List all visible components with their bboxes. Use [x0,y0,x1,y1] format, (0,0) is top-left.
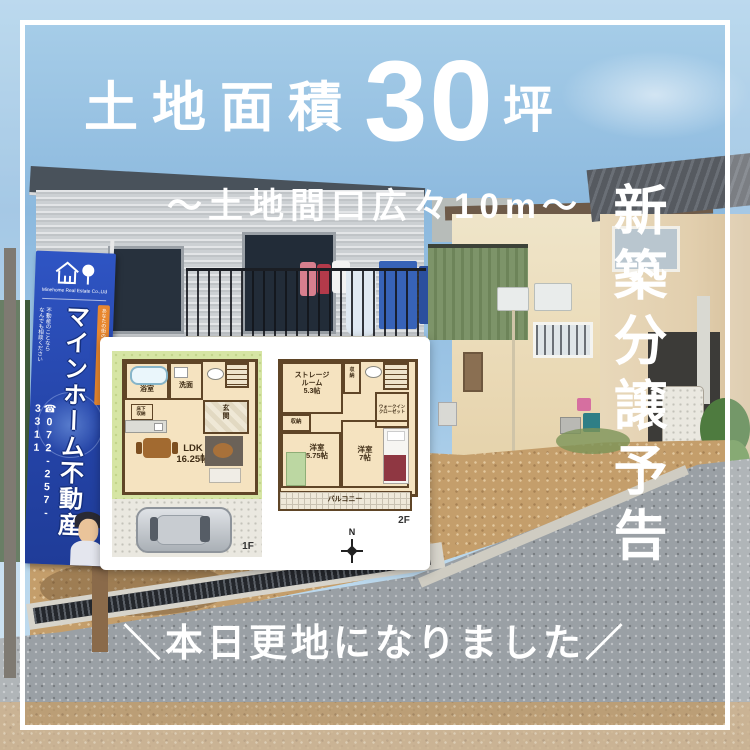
fp1-bath-label: 浴室 [127,386,167,394]
fp2-floor-label: 2F [394,515,414,526]
fp1-stairs [225,362,249,388]
fp2-closet-left-label: 収納 [283,419,309,425]
side-vertical-text: 新築分譲予告 [608,182,662,572]
bathtub [130,366,168,385]
compass-n-label: N [344,527,360,537]
fp2-closet-top: 収 納 [343,362,361,394]
fp2-bedroom2: 洋室 7帖 [341,420,409,488]
banner-company-en: Minehome Real Estate Co.,Ltd [34,288,114,296]
phone-icon: ☎ [44,403,56,416]
fp2-storage-label: ストレージ ルーム 5.3帖 [283,372,341,395]
fp2-closet-top-label: 収 納 [345,368,359,379]
fp2-bed-blanket [384,455,406,481]
white-bin [438,402,457,426]
bottom-banner-text: ＼本日更地になりました／ [0,612,750,667]
barred-window [533,322,593,358]
headline-number: 30 [364,52,495,152]
car-top-view [136,507,232,553]
fp1-underfloor: 床下 収納 [131,404,153,420]
fp1-underfloor-label: 床下 収納 [132,406,150,416]
banner-phone-number: ☎072-257-3311 [26,403,56,559]
bottom-gravel [0,702,750,750]
house-tree-logo-icon [51,257,100,289]
fp2-bedroom1: 洋室 5.75帖 [281,432,341,488]
ac-unit-1 [497,287,529,311]
fp1-entrance-label: 玄 関 [219,405,233,421]
fp1-bathroom: 浴室 [125,362,169,400]
headline: 土地面積 30 坪 [84,52,553,152]
fp1-toilet [207,368,224,380]
fp2-stairs [383,362,409,390]
banner-divider [42,298,106,301]
headline-unit: 坪 [503,70,553,152]
ac-unit-2 [534,283,572,311]
fp1-wash-label: 洗面 [171,382,201,390]
banner-tagline-left: 不動産のことなら なんでも相談ください [33,307,51,399]
headline-prefix: 土地面積 [84,63,356,152]
sink [174,367,188,378]
pink-bucket [577,398,591,411]
phone-digits: 072-257-3311 [30,403,55,521]
fp2-plan: ストレージ ルーム 5.3帖 収 納 ウォークイン クローゼット 収納 洋室 5… [278,359,418,497]
fp2-bed-pillow [387,431,405,441]
fp2-storage-room: ストレージ ルーム 5.3帖 [281,362,343,414]
mascot-face [78,518,99,543]
car-windshield [200,516,210,542]
kitchen-sink [154,423,163,431]
chair-left [136,442,142,454]
fp1-driveway: 1F [112,499,262,557]
balcony-railing [186,268,426,341]
left-building-window-1 [108,246,184,334]
fp2-balcony: バルコニー [278,491,412,511]
compass-diamond [346,545,357,556]
compass: N [336,527,368,567]
floorplan-card: 浴室 洗面 玄 関 床下 収納 LDK 16.25帖 [100,337,430,570]
fp2-toilet [365,366,382,378]
fp2-closet-left: 収納 [281,414,311,432]
car-rear-window [150,517,158,541]
kitchen-counter [125,420,167,433]
mascot-shirt [70,540,103,566]
rug-cushion [213,443,233,458]
fp2-bed-white [383,428,409,484]
fp1-plan: 浴室 洗面 玄 関 床下 収納 LDK 16.25帖 [122,359,258,495]
fp1-floor-label: 1F [238,541,258,552]
cloud [560,50,750,140]
fp2-wic-label: ウォークイン クローゼット [377,405,407,415]
fp2-balcony-label: バルコニー [280,496,410,504]
living-rug [205,436,243,466]
fp2-bed-green [286,452,306,486]
sofa [209,468,241,483]
real-estate-ad-image: Minehome Real Estate Co.,Ltd 不動産のことなら なん… [0,0,750,750]
fp2-bedroom2-label: 洋室 7帖 [347,446,383,463]
shutter-window [463,352,483,392]
fp1-washroom: 洗面 [169,362,203,400]
fp1-entrance: 玄 関 [203,400,249,434]
